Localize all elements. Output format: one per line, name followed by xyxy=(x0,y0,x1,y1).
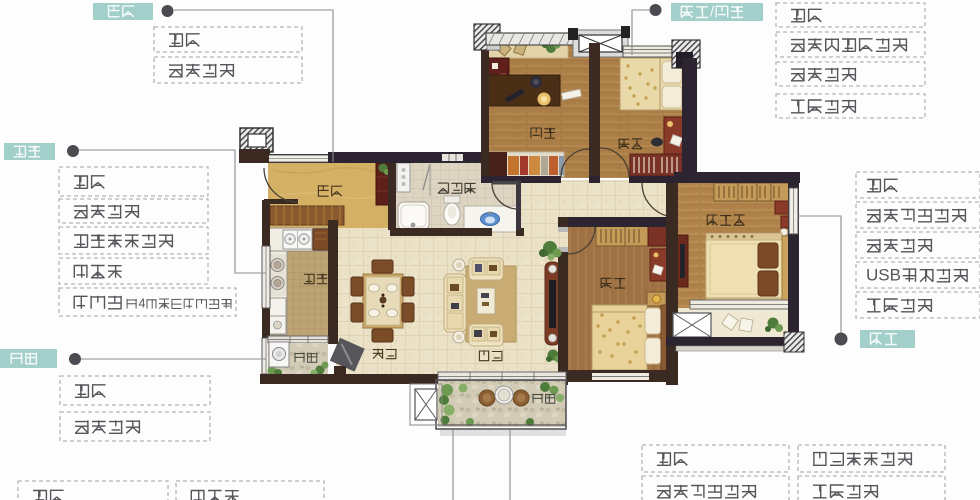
svg-text:USB: USB xyxy=(866,265,901,284)
svg-text:4: 4 xyxy=(139,297,146,311)
